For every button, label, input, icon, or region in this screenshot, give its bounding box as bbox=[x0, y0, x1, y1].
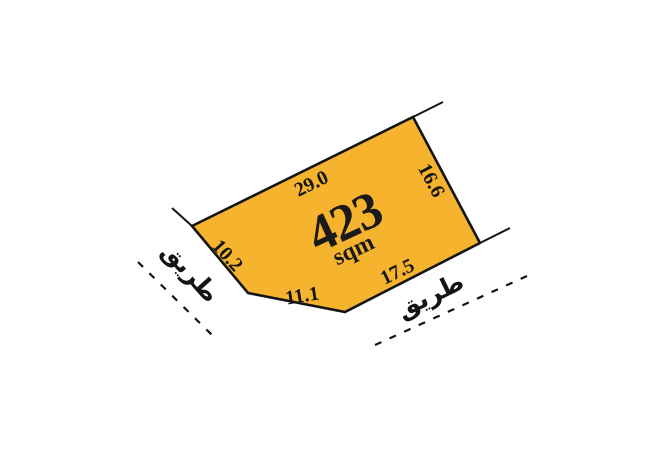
plot-survey-svg: 29.0 16.6 17.5 11.1 10.2 423 sqm طريق طر… bbox=[0, 0, 668, 452]
boundary-extension-line-bottom-right bbox=[480, 228, 510, 243]
boundary-extension-line-left bbox=[172, 208, 192, 226]
land-plot-diagram: 29.0 16.6 17.5 11.1 10.2 423 sqm طريق طر… bbox=[0, 0, 668, 452]
boundary-extension-line-top-right bbox=[413, 102, 443, 117]
